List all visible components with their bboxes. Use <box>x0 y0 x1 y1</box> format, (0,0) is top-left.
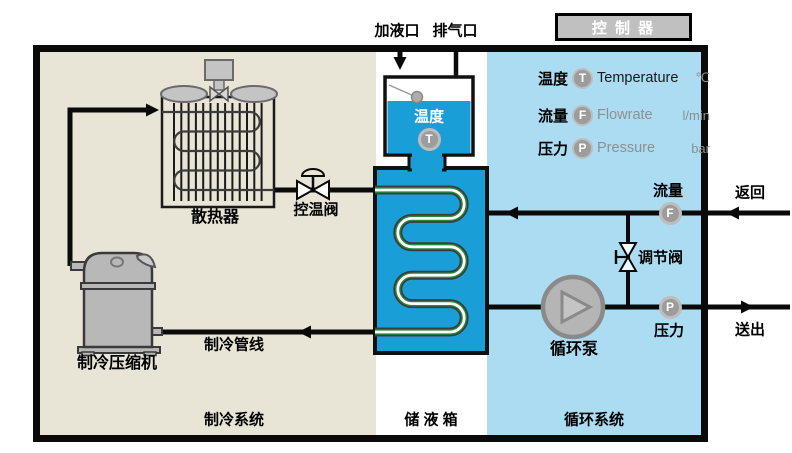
arrow-supply-out-icon <box>741 301 754 314</box>
legend-temperature-en: Temperature <box>597 70 695 86</box>
compressor <box>71 253 162 356</box>
flow-sensor-icon: F <box>659 202 682 225</box>
return-label: 返回 <box>735 186 765 201</box>
zone-label-storage-tank: 储 液 箱 <box>404 413 457 428</box>
fan-blade-left <box>161 86 207 102</box>
vent-port-label: 排气口 <box>432 24 477 39</box>
pressure-label: 压力 <box>654 324 684 339</box>
tank-body <box>375 168 487 353</box>
fan-blade-right <box>231 86 277 102</box>
temp-control-valve-label: 控温阀 <box>293 203 338 218</box>
legend-row-temperature: 温度 T Temperature ℃ <box>538 66 710 90</box>
legend-temperature-unit: ℃ <box>695 70 710 86</box>
legend-flowrate-unit: l/min <box>683 108 710 123</box>
radiator-label: 散热器 <box>191 210 239 226</box>
regulating-valve-icon <box>616 243 636 271</box>
tank-temperature-label: 温度 <box>414 110 444 125</box>
pressure-symbol-icon: P <box>572 138 593 159</box>
controller-label: 控 制 器 <box>592 17 655 38</box>
regulating-valve-label: 调节阀 <box>638 251 683 266</box>
zone-label-circulation: 循环系统 <box>564 413 624 428</box>
legend-pressure-zh: 压力 <box>538 138 568 159</box>
legend-row-flowrate: 流量 F Flowrate l/min <box>538 103 710 127</box>
compressor-band <box>81 283 155 289</box>
legend-flowrate-zh: 流量 <box>538 105 568 126</box>
float-icon <box>412 92 423 103</box>
pressure-sensor-icon: P <box>659 296 682 319</box>
legend-row-pressure: 压力 P Pressure bar <box>538 136 710 160</box>
zone-label-refrigeration: 制冷系统 <box>204 413 264 428</box>
pump-icon <box>543 277 603 337</box>
legend-flowrate-en: Flowrate <box>597 107 683 123</box>
tank-temperature-sensor-icon: T <box>418 128 441 151</box>
radiator <box>162 97 274 207</box>
arrow-fill-port-icon <box>394 57 407 70</box>
compressor-outlet-nozzle <box>152 328 162 335</box>
diagram-canvas: 控 制 器 加液口 排气口 温度 T Temperature ℃ 流量 F Fl… <box>0 0 792 453</box>
flowrate-symbol-icon: F <box>572 105 593 126</box>
temperature-symbol-icon: T <box>572 68 593 89</box>
fill-port-label: 加液口 <box>374 24 419 39</box>
controller-box: 控 制 器 <box>555 13 692 41</box>
compressor-label: 制冷压缩机 <box>77 356 157 372</box>
pipe-compressor-to-radiator <box>70 110 148 266</box>
legend-pressure-unit: bar <box>691 141 710 156</box>
temp-control-valve-icon <box>297 169 329 199</box>
flow-label: 流量 <box>653 184 683 199</box>
refrigerant-line-label: 制冷管线 <box>204 338 264 353</box>
arrow-refrigerant-line-icon <box>298 326 311 339</box>
pump-label: 循环泵 <box>550 342 598 358</box>
fan-icon <box>161 60 277 102</box>
arrow-return-into-tank-icon <box>505 207 518 220</box>
legend-temperature-zh: 温度 <box>538 68 568 89</box>
legend-pressure-en: Pressure <box>597 140 691 156</box>
fan-motor <box>205 60 233 80</box>
arrow-return-outer-icon <box>726 207 739 220</box>
arrow-into-radiator-icon <box>146 104 159 117</box>
supply-label: 送出 <box>735 323 765 338</box>
